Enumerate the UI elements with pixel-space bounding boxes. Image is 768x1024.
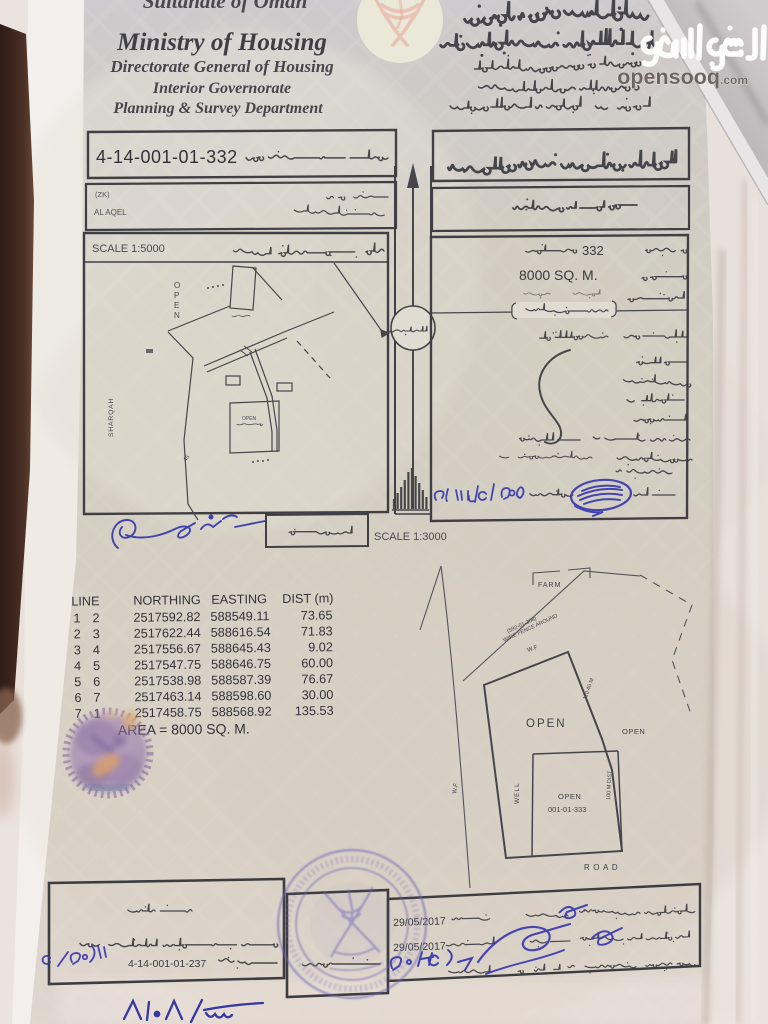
- svg-text:FARM: FARM: [538, 582, 561, 589]
- svg-text:SCALE 1:5000: SCALE 1:5000: [92, 243, 165, 255]
- svg-text:9.02: 9.02: [308, 640, 333, 654]
- svg-text:Directorate General of Housing: Directorate General of Housing: [109, 57, 334, 76]
- svg-text:3: 3: [93, 627, 100, 641]
- svg-text:NORTHING: NORTHING: [133, 593, 201, 608]
- svg-text:76.67: 76.67: [301, 672, 333, 686]
- svg-text:001-01-333: 001-01-333: [548, 805, 586, 814]
- svg-text:2517538.98: 2517538.98: [134, 674, 201, 689]
- svg-text:2517458.75: 2517458.75: [135, 705, 202, 720]
- svg-text:588598.60: 588598.60: [211, 689, 271, 704]
- svg-text:N: N: [174, 311, 180, 320]
- svg-text:60.00: 60.00: [301, 656, 333, 670]
- svg-text:LINE: LINE: [71, 594, 99, 608]
- svg-text:2: 2: [92, 611, 99, 625]
- svg-text:P: P: [174, 291, 179, 300]
- svg-text:3: 3: [74, 643, 81, 657]
- svg-text:332: 332: [582, 243, 604, 258]
- svg-text:EASTING: EASTING: [211, 592, 267, 607]
- svg-text:588616.54: 588616.54: [211, 625, 271, 640]
- svg-text:Planning & Survey Department: Planning & Survey Department: [112, 100, 323, 117]
- svg-text:73.65: 73.65: [301, 608, 333, 622]
- svg-text:2517592.82: 2517592.82: [133, 610, 200, 625]
- svg-text:2517556.67: 2517556.67: [134, 642, 201, 657]
- svg-text:8000 SQ. M.: 8000 SQ. M.: [519, 267, 598, 283]
- svg-text:6: 6: [74, 691, 81, 705]
- svg-text:588568.92: 588568.92: [212, 705, 272, 720]
- svg-text:4-14-001-01-332: 4-14-001-01-332: [96, 147, 238, 167]
- svg-text:588646.75: 588646.75: [211, 657, 271, 672]
- svg-text:2517547.75: 2517547.75: [134, 658, 201, 673]
- svg-text:2517622.44: 2517622.44: [134, 626, 201, 641]
- svg-text:E: E: [174, 301, 179, 310]
- svg-text:2: 2: [74, 627, 81, 641]
- svg-text:Sultanate of Oman: Sultanate of Oman: [143, 0, 308, 13]
- svg-text:588587.39: 588587.39: [211, 673, 271, 688]
- svg-text:4-14-001-01-237: 4-14-001-01-237: [128, 958, 206, 970]
- svg-text:5: 5: [74, 675, 81, 689]
- svg-text:OPEN: OPEN: [242, 416, 257, 422]
- svg-text:SCALE 1:3000: SCALE 1:3000: [374, 531, 447, 543]
- svg-text:OPEN: OPEN: [622, 727, 645, 736]
- svg-text:ROAD: ROAD: [584, 863, 621, 872]
- svg-text:O: O: [174, 281, 180, 290]
- svg-text:71.83: 71.83: [301, 624, 333, 638]
- svg-text:30.00: 30.00: [302, 688, 334, 702]
- svg-text:135.53: 135.53: [295, 704, 334, 718]
- svg-text:588549.11: 588549.11: [210, 609, 269, 624]
- svg-text:4: 4: [74, 659, 81, 673]
- svg-text:4: 4: [93, 643, 100, 657]
- svg-text:AL AQEL: AL AQEL: [94, 208, 127, 217]
- svg-text:6: 6: [93, 675, 100, 689]
- svg-text:OPEN: OPEN: [526, 718, 567, 730]
- svg-text:DIST (m): DIST (m): [282, 591, 333, 606]
- svg-text:OPEN: OPEN: [558, 792, 581, 801]
- svg-text:7: 7: [93, 691, 100, 705]
- svg-text:SHARQAH: SHARQAH: [108, 398, 115, 437]
- svg-text:WELL: WELL: [514, 782, 521, 804]
- svg-text:Ministry of Housing: Ministry of Housing: [116, 29, 327, 56]
- svg-text:1: 1: [73, 611, 80, 625]
- svg-text:2517463.14: 2517463.14: [134, 689, 201, 704]
- svg-text:Interior Governorate: Interior Governorate: [152, 80, 291, 97]
- svg-text:5: 5: [93, 659, 100, 673]
- svg-text:(ZK): (ZK): [95, 190, 110, 199]
- svg-text:588645.43: 588645.43: [211, 641, 271, 656]
